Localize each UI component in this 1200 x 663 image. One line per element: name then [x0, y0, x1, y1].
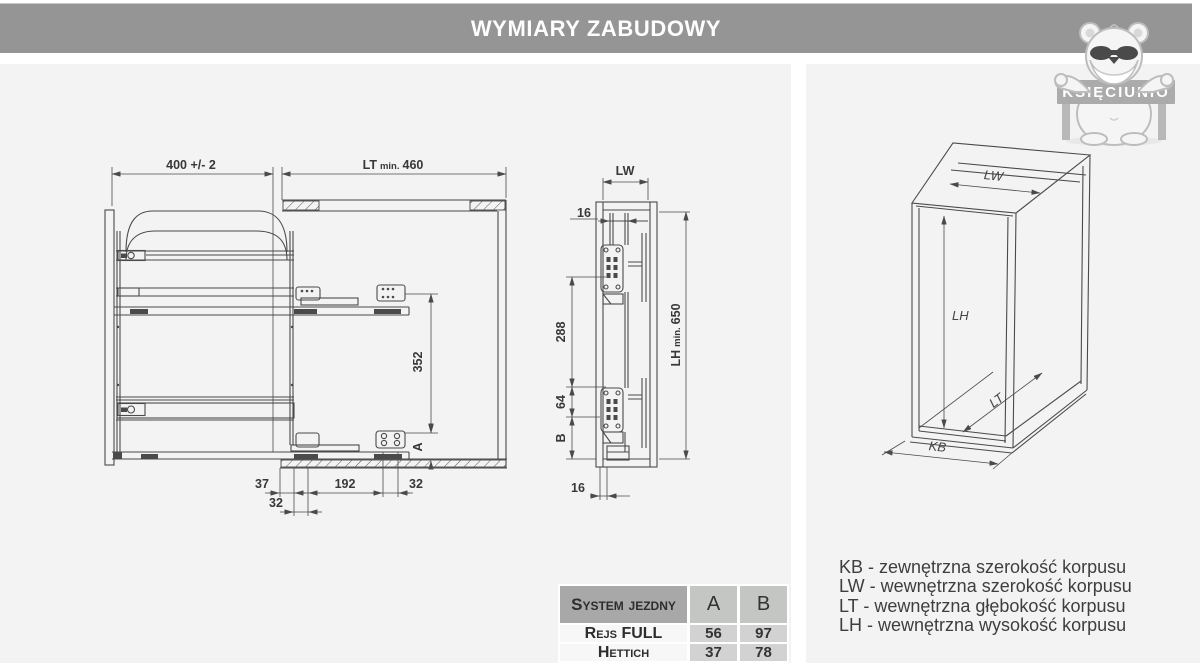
table-cell-b: 97: [740, 625, 787, 642]
catalog-page: WYMIARY ZABUDOWY 400 +/- 2 LTmin.460: [0, 0, 1200, 663]
table-cell-system: Hettich: [560, 644, 687, 661]
header-bar: WYMIARY ZABUDOWY: [0, 3, 1192, 53]
table-cell-a: 56: [690, 625, 737, 642]
legend-line-lw: LW - wewnętrzna szerokość korpusu: [839, 577, 1132, 596]
mascot-nose: [1108, 57, 1120, 64]
table-row: Hettich 37 78: [560, 644, 787, 661]
legend-line-lt: LT - wewnętrzna głębokość korpusu: [839, 597, 1132, 616]
table-cell-system: Rejs FULL: [560, 625, 687, 642]
page-title: WYMIARY ZABUDOWY: [471, 16, 721, 42]
table-header-a: A: [690, 586, 737, 623]
table-row: Rejs FULL 56 97: [560, 625, 787, 642]
legend-line-kb: KB - zewnętrzna szerokość korpusu: [839, 558, 1132, 577]
slide-system-table: System jezdny A B Rejs FULL 56 97 Hettic…: [558, 584, 789, 663]
left-panel: [0, 64, 791, 663]
legend: KB - zewnętrzna szerokość korpusu LW - w…: [839, 558, 1132, 636]
legend-line-lh: LH - wewnętrzna wysokość korpusu: [839, 616, 1132, 635]
table-cell-a: 37: [690, 644, 737, 661]
table-header-row: System jezdny A B: [560, 586, 787, 623]
table-header-system: System jezdny: [560, 586, 687, 623]
table-cell-b: 78: [740, 644, 787, 661]
table-header-b: B: [740, 586, 787, 623]
